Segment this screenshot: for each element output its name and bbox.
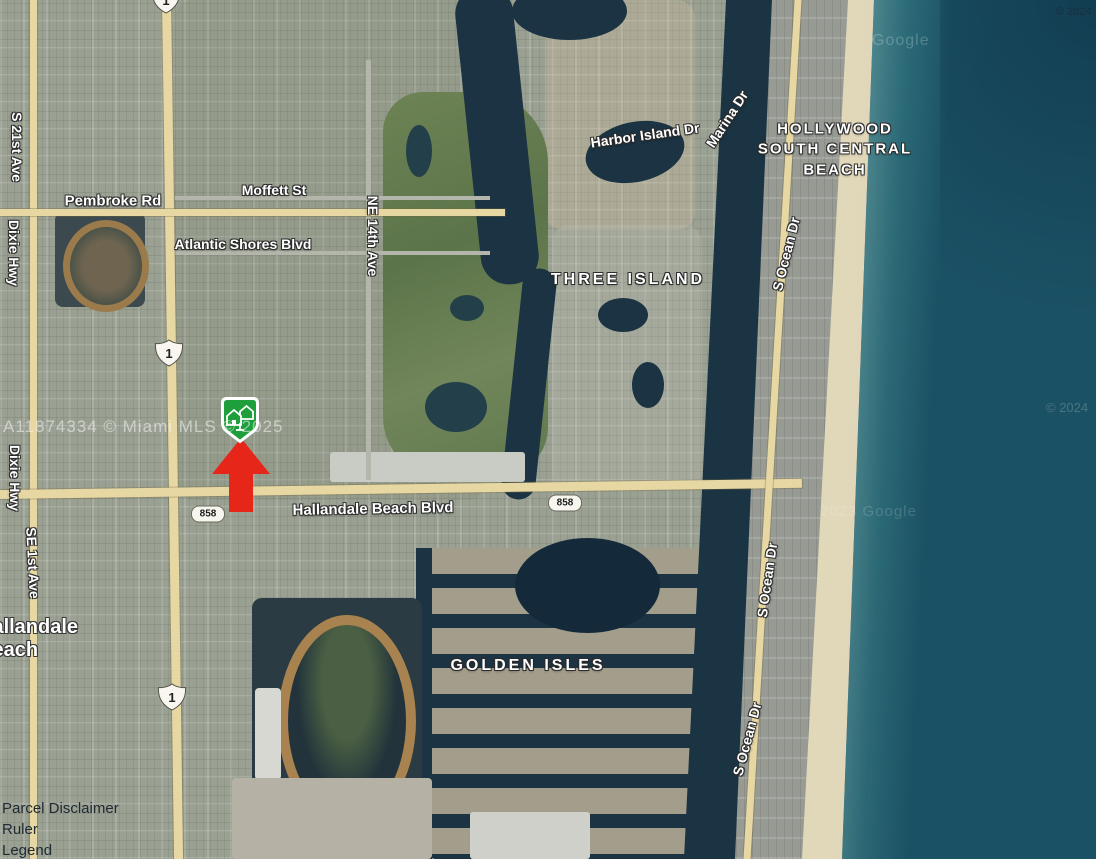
route-shield-us1: 1 bbox=[154, 339, 184, 367]
label-moffett-st: Moffett St bbox=[242, 182, 307, 198]
label-dixie-hwy: Dixie Hwy bbox=[7, 445, 23, 511]
svg-text:1: 1 bbox=[168, 690, 175, 705]
label-line: BEACH bbox=[758, 160, 912, 180]
label-hollywood-south-central-beach: HOLLYWOOD SOUTH CENTRAL BEACH bbox=[758, 120, 912, 181]
label-s21st-ave: S 21st Ave bbox=[9, 112, 25, 182]
corner-credit-watermark: © 2024 bbox=[1056, 6, 1092, 18]
label-pembroke-rd: Pembroke Rd bbox=[65, 193, 162, 210]
label-line: Beach bbox=[0, 639, 78, 662]
golf-pond-icon bbox=[425, 382, 487, 432]
ruler-link[interactable]: Ruler bbox=[2, 821, 38, 838]
label-ne-14th-ave: NE 14th Ave bbox=[365, 196, 381, 277]
road-pembroke-rd bbox=[0, 209, 505, 216]
island-lake bbox=[598, 298, 648, 332]
marker-arrow-icon bbox=[212, 438, 270, 512]
road-moffett-st bbox=[175, 196, 490, 200]
satellite-map[interactable]: 1 1 1 858 858 S 21st Ave Dixie Hwy Dixie… bbox=[0, 0, 1096, 859]
deep-water bbox=[940, 0, 1096, 420]
google-watermark: Google bbox=[872, 32, 930, 50]
route-shield-us1: 1 bbox=[157, 683, 187, 711]
small-track-oval bbox=[63, 220, 149, 312]
route-shield-858: 858 bbox=[548, 495, 582, 512]
parcel-disclaimer-link[interactable]: Parcel Disclaimer bbox=[2, 800, 119, 817]
tile-year-watermark: © 2024 bbox=[1046, 400, 1088, 415]
commercial-roofs bbox=[330, 452, 525, 482]
mls-watermark: A11874334 © Miami MLS © 2025 bbox=[3, 417, 284, 437]
label-city-hallandale-beach: Hallandale Beach bbox=[0, 616, 78, 662]
island-lake bbox=[632, 362, 664, 408]
tile-credit-watermark: 2023 Google bbox=[820, 503, 917, 520]
label-atlantic-shores-blvd: Atlantic Shores Blvd bbox=[175, 236, 312, 252]
svg-text:1: 1 bbox=[165, 346, 172, 361]
marina-buildings bbox=[470, 812, 590, 859]
label-golden-isles: GOLDEN ISLES bbox=[450, 657, 605, 675]
label-dixie-hwy: Dixie Hwy bbox=[6, 220, 22, 286]
label-line: SOUTH CENTRAL bbox=[758, 140, 912, 160]
golf-pond-icon bbox=[406, 125, 432, 177]
label-se1st-ave: SE 1st Ave bbox=[23, 527, 43, 599]
label-three-island: THREE ISLAND bbox=[551, 271, 705, 289]
golf-pond-icon bbox=[450, 295, 484, 321]
label-hallandale-beach-blvd: Hallandale Beach Blvd bbox=[292, 499, 453, 519]
marina-basin bbox=[515, 538, 660, 633]
parking-lot bbox=[232, 778, 432, 859]
three-island-tint bbox=[552, 225, 702, 490]
svg-text:1: 1 bbox=[162, 0, 169, 8]
grandstand-building bbox=[255, 688, 281, 780]
label-line: HOLLYWOOD bbox=[758, 120, 912, 140]
legend-link[interactable]: Legend bbox=[2, 842, 52, 859]
route-shield-us1: 1 bbox=[151, 0, 181, 14]
label-line: Hallandale bbox=[0, 616, 78, 639]
